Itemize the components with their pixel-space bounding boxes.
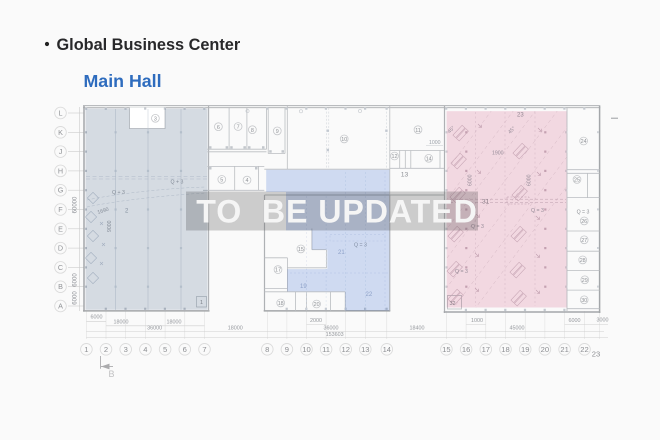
svg-text:13: 13 (401, 172, 409, 179)
svg-text:2: 2 (104, 345, 108, 354)
svg-text:17: 17 (275, 268, 281, 274)
svg-text:17: 17 (482, 345, 490, 354)
svg-text:23: 23 (592, 350, 600, 359)
svg-text:15: 15 (298, 247, 304, 253)
svg-text:J: J (59, 147, 63, 156)
svg-text:30: 30 (581, 298, 587, 304)
svg-text:6: 6 (217, 125, 220, 131)
svg-text:10: 10 (302, 345, 310, 354)
svg-text:11: 11 (415, 128, 421, 134)
svg-text:1: 1 (84, 345, 88, 354)
svg-text:19: 19 (521, 345, 529, 354)
svg-text:1000: 1000 (471, 318, 483, 324)
svg-text:6000: 6000 (73, 291, 79, 305)
svg-text:4: 4 (143, 345, 147, 354)
svg-text:9: 9 (285, 345, 289, 354)
svg-text:16: 16 (462, 345, 470, 354)
svg-text:18400: 18400 (410, 326, 425, 332)
svg-text:H: H (58, 166, 63, 175)
svg-text:11: 11 (322, 345, 330, 354)
svg-text:9: 9 (276, 129, 279, 135)
svg-text:L: L (59, 109, 63, 118)
svg-text:20: 20 (314, 302, 320, 308)
svg-text:6000: 6000 (569, 318, 581, 324)
svg-text:7: 7 (202, 345, 206, 354)
svg-text:12: 12 (392, 154, 398, 160)
svg-text:E: E (58, 224, 63, 233)
svg-text:1000: 1000 (429, 140, 441, 146)
svg-text:15: 15 (442, 345, 450, 354)
svg-text:6000: 6000 (91, 314, 103, 320)
svg-text:8: 8 (251, 128, 254, 134)
svg-text:G: G (58, 186, 64, 195)
svg-text:26: 26 (581, 219, 587, 225)
svg-text:K: K (58, 128, 63, 137)
svg-text:13: 13 (361, 345, 369, 354)
svg-text:2000: 2000 (310, 318, 322, 324)
svg-text:6000: 6000 (73, 273, 79, 287)
svg-text:5: 5 (163, 345, 167, 354)
svg-text:24: 24 (581, 139, 587, 145)
svg-text:5: 5 (220, 178, 223, 184)
svg-text:22: 22 (580, 345, 588, 354)
svg-text:14: 14 (426, 156, 432, 162)
svg-text:21: 21 (560, 345, 568, 354)
svg-text:18000: 18000 (114, 319, 129, 325)
svg-text:36000: 36000 (324, 326, 339, 332)
svg-text:12: 12 (341, 345, 349, 354)
svg-text:Q = 3: Q = 3 (577, 209, 590, 215)
svg-text:60000: 60000 (73, 196, 79, 213)
svg-text:20: 20 (541, 345, 549, 354)
svg-text:45000: 45000 (510, 326, 525, 332)
svg-text:3: 3 (154, 116, 157, 122)
svg-text:25: 25 (574, 178, 580, 184)
svg-text:C: C (58, 263, 63, 272)
svg-text:153603: 153603 (326, 332, 344, 338)
svg-text:Global Business Center: Global Business Center (57, 36, 241, 54)
svg-text:3: 3 (124, 345, 128, 354)
svg-text:F: F (58, 205, 63, 214)
svg-text:18000: 18000 (228, 326, 243, 332)
svg-text:4: 4 (246, 178, 249, 184)
svg-text:B: B (58, 282, 63, 291)
svg-text:8: 8 (265, 345, 269, 354)
svg-text:29: 29 (582, 278, 588, 284)
svg-text:18: 18 (501, 345, 509, 354)
svg-text:7: 7 (237, 125, 240, 131)
svg-text:TO BE UPDATED: TO BE UPDATED (196, 193, 477, 229)
svg-text:B: B (109, 369, 115, 379)
svg-text:D: D (58, 244, 63, 253)
svg-text:A: A (58, 302, 63, 311)
svg-text:3000: 3000 (597, 317, 609, 323)
svg-text:28: 28 (580, 258, 586, 264)
svg-text:6: 6 (183, 345, 187, 354)
svg-text:10: 10 (341, 137, 347, 143)
svg-text:18000: 18000 (167, 319, 182, 325)
svg-text:36000: 36000 (147, 326, 162, 332)
svg-text:Main Hall: Main Hall (84, 71, 162, 91)
svg-text:18: 18 (278, 301, 284, 307)
svg-text:14: 14 (383, 345, 391, 354)
svg-text:27: 27 (581, 238, 587, 244)
